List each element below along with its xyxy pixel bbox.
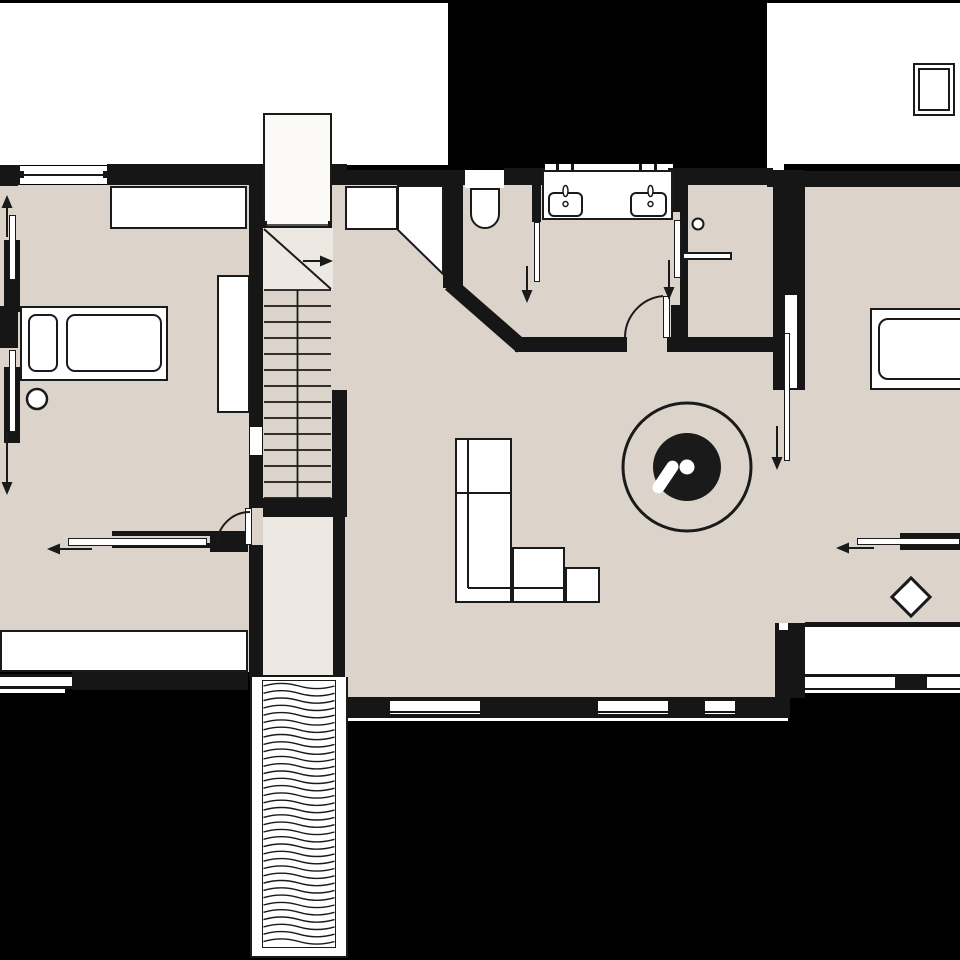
wall-bath-south-a: [515, 337, 627, 352]
slide-left-bar-top: [112, 531, 210, 536]
floor-main: [345, 183, 775, 697]
toilet-bowl: [470, 188, 500, 229]
glass-leaf-1: [9, 215, 16, 280]
windowsill-1-line: [390, 711, 480, 713]
sink-right: [630, 192, 667, 217]
wall-south-left: [72, 672, 248, 690]
door-leaf-bath: [663, 296, 670, 338]
stair-niche: [250, 427, 262, 455]
slide-leaf-hall: [784, 333, 790, 461]
bed-left-pillow: [28, 314, 58, 372]
wall-top-3: [345, 170, 465, 185]
slab-notch: [779, 623, 788, 630]
door-leaf-stairhall: [245, 508, 252, 545]
wall-left-stub: [0, 180, 18, 186]
closet-bedroom-top: [110, 186, 247, 229]
windowsill-3-line: [705, 711, 735, 713]
tower-tick-l: [263, 221, 267, 228]
deck-hatch: [262, 680, 336, 948]
wall-slab-lower: [775, 623, 805, 698]
wall-stair-east: [332, 390, 347, 498]
closet-corridor: [345, 186, 398, 230]
stair-tower: [263, 113, 332, 228]
toilet-tank: [465, 170, 504, 188]
slide-leaf-right-room: [857, 538, 960, 545]
slide-leaf-wc: [534, 222, 540, 282]
wall-slide-left-chunk: [210, 531, 248, 552]
balcony-window-2: [927, 677, 960, 688]
floor-plan: [0, 0, 960, 960]
wall-walkway-east: [333, 517, 345, 677]
balcony-deck: [805, 627, 960, 674]
floor-bedroom-left: [0, 185, 250, 672]
sofa-seat-mid: [512, 547, 565, 603]
wall-left-chunk: [0, 306, 18, 348]
skylight-inner: [918, 68, 950, 111]
slide-right-bar-bottom: [900, 545, 960, 550]
wall-bath-south-b: [667, 337, 773, 352]
slide-leaf-left-room: [68, 538, 207, 546]
shower-bench: [682, 252, 732, 260]
sink-left: [548, 192, 583, 217]
outside-area-top-left: [0, 3, 448, 165]
bottom-wall-underline: [345, 718, 788, 721]
window-bedroom-top: [20, 166, 107, 184]
wall-wc-east-upper: [532, 183, 541, 222]
wall-stair-west-lower: [249, 545, 263, 677]
balcony-underline: [805, 690, 960, 693]
walkway-deck-line: [263, 675, 333, 677]
sofa-chaise: [455, 438, 512, 603]
sofa-seat-end: [565, 567, 600, 603]
bed-right-mattress: [878, 318, 960, 380]
wall-stair-bottom: [263, 498, 347, 517]
window-bedroom-tick-l: [20, 171, 24, 178]
windowsill-2-line: [598, 711, 668, 713]
balcony-window-1: [805, 677, 895, 688]
slide-leaf-shower: [674, 220, 681, 278]
wall-balcony-chunk: [895, 674, 927, 690]
glass-leaf-2: [9, 350, 16, 432]
tower-tick-r: [328, 221, 332, 228]
floor-bedroom-right: [805, 187, 960, 623]
walkway: [263, 517, 333, 677]
wall-wc-west: [443, 185, 463, 288]
closet-bedroom-east: [217, 275, 250, 413]
stair-landing: [263, 228, 333, 290]
bed-left-mattress: [66, 314, 162, 372]
window-south-left: [0, 677, 72, 686]
wall-stair-west-upper: [249, 168, 263, 508]
wall-vanity-shower: [680, 183, 688, 338]
window-seat-left: [0, 630, 248, 672]
window-south-left-underline: [0, 689, 65, 693]
